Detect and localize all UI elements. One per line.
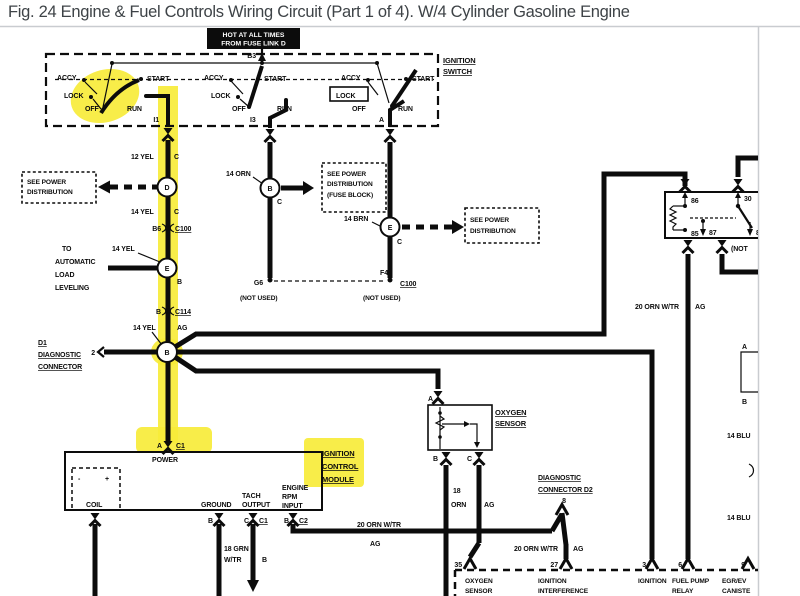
wire-14blu-label2: 14 BLU <box>727 515 751 522</box>
ecm-6-label2: RELAY <box>672 588 694 595</box>
icm-tach-connector: C1 <box>259 518 268 525</box>
sw3-off: OFF <box>352 106 367 113</box>
all-line3: LOAD <box>55 272 74 279</box>
wire-20orn-icm-label: 20 ORN W/TR <box>357 522 401 529</box>
wire-20orn-relay-label: 20 ORN W/TR <box>635 304 679 311</box>
d1-line2: CONNECTOR <box>38 364 82 371</box>
relay-terminal-85: 85 <box>691 231 699 238</box>
d2-line2: CONNECTOR D2 <box>538 487 593 494</box>
ecm-3-label: IGNITION <box>638 578 667 585</box>
pwr2-line2: DISTRIBUTION <box>327 181 373 188</box>
coil: - + COIL <box>72 468 120 596</box>
ignition-switch-label2: SWITCH <box>443 67 472 76</box>
wire-18grn-circuit: B <box>262 557 267 564</box>
ecm-27-label1: IGNITION <box>538 578 567 585</box>
ignition-feed-column: 12 YEL C D SEE POWER DISTRIBUTION 14 YEL… <box>22 128 192 345</box>
relay-terminal-87: 87 <box>709 230 717 237</box>
wire-18orn-label: ORN <box>451 502 466 509</box>
sw3-start: START <box>412 76 435 83</box>
ecm-terminal-6: 6 <box>678 562 682 569</box>
wire-20orn-relay-circuit: AG <box>695 304 706 311</box>
splice-b2-label: B <box>268 186 273 193</box>
all-line4: LEVELING <box>55 285 90 292</box>
pwr1-line1: SEE POWER <box>27 179 66 186</box>
right-edge-column: A B 14 BLU 14 BLU <box>727 344 758 522</box>
pwr3-line2: DISTRIBUTION <box>470 228 516 235</box>
splice-b-branches: B <box>157 174 685 559</box>
ox-name-line2: SENSOR <box>495 419 527 428</box>
sw2-terminal: I3 <box>250 117 256 124</box>
icm-tach-label2: OUTPUT <box>242 502 271 509</box>
wire-18orn-gauge: 18 <box>453 488 461 495</box>
hot-feed-box: HOT AT ALL TIMES FROM FUSE LINK D B3 <box>207 28 300 63</box>
splice-b-label: B <box>165 350 170 357</box>
relay-terminal-30: 30 <box>744 196 752 203</box>
splice-e2-label: E <box>388 225 393 232</box>
d2-line1: DIAGNOSTIC <box>538 475 581 482</box>
sw2-off: OFF <box>232 106 247 113</box>
see-power-distribution-fuse-block-box: SEE POWER DISTRIBUTION (FUSE BLOCK) <box>322 163 386 212</box>
wire-14orn-label: 14 ORN <box>226 171 251 178</box>
switch-section-2: ACCY START LOCK OFF RUN I3 <box>204 66 292 128</box>
highlight-c1-connector <box>136 427 212 453</box>
d1-pin: 2 <box>91 350 95 357</box>
sw3-run: RUN <box>398 106 413 113</box>
highlighter-marks <box>64 60 364 487</box>
oxygen-sensor: A OXYGEN SENSOR B C 18 ORN <box>428 391 527 596</box>
wire-14yel-circuit: C <box>174 209 179 216</box>
wire-12yel-circuit: C <box>174 154 179 161</box>
relay: 86 30 87 8 85 (NOT <box>635 158 770 559</box>
relay-terminal-86: 86 <box>691 198 699 205</box>
splice-d-label: D <box>165 185 170 192</box>
ecm-terminal-27: 27 <box>550 562 558 569</box>
ox-pin-b: B <box>433 456 438 463</box>
wire-20orn-icm-circuit: AG <box>370 541 381 548</box>
icm-ground-label: GROUND <box>201 502 232 509</box>
splice-b2-pin: C <box>277 199 282 206</box>
wire-14yel3-circuit: AG <box>177 325 188 332</box>
wire-14yel2-label: 14 YEL <box>112 246 135 253</box>
sw2-lock: LOCK <box>211 93 230 100</box>
c100-label: C100 <box>175 226 192 233</box>
pwr1-line2: DISTRIBUTION <box>27 189 73 196</box>
sw1-accy: ACCY <box>57 75 77 82</box>
ecm-terminal-35: 35 <box>454 562 462 569</box>
terminal-f4: F4 <box>380 270 388 277</box>
f4-c100-label: C100 <box>400 281 417 288</box>
switch-section-3: ACCY START LOCK OFF RUN A <box>330 63 435 127</box>
ecm-terminal-9: 9 <box>741 562 745 569</box>
wire-12yel-label: 12 YEL <box>131 154 154 161</box>
ecm-6-label1: FUEL PUMP <box>672 578 710 585</box>
wire-14brn-label: 14 BRN <box>344 216 368 223</box>
icm-name-line2: CONTROL <box>322 462 359 471</box>
a-column: 14 BRN E C F4 C100 (NOT USED) <box>274 129 464 302</box>
ecm-35-label2: SENSOR <box>465 588 493 595</box>
splice-e-pin: B <box>177 279 182 286</box>
wire-20orn-d2-circuit: AG <box>573 546 584 553</box>
ecm-9-label1: EGR/EV <box>722 578 747 585</box>
icm-tach-label1: TACH <box>242 493 261 500</box>
hot-feed-line2: FROM FUSE LINK D <box>221 41 286 48</box>
coil-label: COIL <box>86 502 103 509</box>
wire-18orn-circuit: AG <box>484 502 495 509</box>
ecm-27-label2: INTERFERENCE <box>538 588 589 595</box>
icm-rpm-label1: ENGINE <box>282 485 309 492</box>
pwr2-line1: SEE POWER <box>327 171 366 178</box>
hot-feed-line1: HOT AT ALL TIMES <box>223 32 285 39</box>
right-conn-pin-b: B <box>742 399 747 406</box>
wire-18grn-label2: W/TR <box>224 557 242 564</box>
splice-e-label: E <box>165 266 170 273</box>
icm-pin-a: A <box>157 443 162 450</box>
ecm-terminal-3: 3 <box>642 562 646 569</box>
diagnostic-connector-d2: DIAGNOSTIC CONNECTOR D2 8 20 ORN W/TR AG <box>514 475 593 559</box>
sw1-terminal: I1 <box>153 117 159 124</box>
sw3-lock: LOCK <box>336 93 355 100</box>
icm-name-line3: MODULE <box>322 475 354 484</box>
c100-pin: B6 <box>152 226 161 233</box>
splice-e2-pin: C <box>397 239 402 246</box>
f4-not-used: (NOT USED) <box>363 295 400 302</box>
icm-rpm-label2: RPM <box>282 494 298 501</box>
icm-power-label: POWER <box>152 457 178 464</box>
wire-18grn-label1: 18 GRN <box>224 546 249 553</box>
ecm-9-label2: CANISTE <box>722 588 751 595</box>
icm-rpm-connector: C2 <box>299 518 308 525</box>
relay-terminal-8: 8 <box>756 230 760 237</box>
d1-line1: DIAGNOSTIC <box>38 352 81 359</box>
right-conn-pin-a: A <box>742 344 747 351</box>
pwr2-line3: (FUSE BLOCK) <box>327 192 373 199</box>
wiring-diagram-page: Fig. 24 Engine & Fuel Controls Wiring Ci… <box>0 0 800 596</box>
sw1-run: RUN <box>127 106 142 113</box>
terminal-g6: G6 <box>254 280 263 287</box>
ecm-35-label1: OXYGEN <box>465 578 493 585</box>
wire-14blu-label1: 14 BLU <box>727 433 751 440</box>
sw3-accy: ACCY <box>341 75 361 82</box>
sw2-accy: ACCY <box>204 75 224 82</box>
all-line1: TO <box>62 246 72 253</box>
sw1-lock: LOCK <box>64 93 83 100</box>
auto-load-leveling-note: TO AUTOMATIC LOAD LEVELING <box>55 246 95 292</box>
ignition-switch-label1: IGNITION <box>443 56 476 65</box>
icm-connector-c1: C1 <box>176 443 185 450</box>
sw1-off: OFF <box>85 106 100 113</box>
sw1-start: START <box>147 76 170 83</box>
see-power-distribution-box-right: SEE POWER DISTRIBUTION <box>465 208 539 243</box>
ecm-boundary: 35 27 3 6 9 OXYGEN SENSOR IGNITION INTER… <box>454 559 758 596</box>
icm-name-line1: IGNITION <box>322 449 355 458</box>
ox-pin-a: A <box>428 396 433 403</box>
wire-20orn-d2-label: 20 ORN W/TR <box>514 546 558 553</box>
g6-not-used: (NOT USED) <box>240 295 277 302</box>
sw2-start: START <box>264 76 287 83</box>
c114-pin: B <box>156 309 161 316</box>
coil-plus: + <box>105 476 109 483</box>
ox-pin-c: C <box>467 456 472 463</box>
sw3-terminal: A <box>379 117 384 124</box>
coil-minus: - <box>78 476 81 483</box>
d1-id: D1 <box>38 340 47 347</box>
see-power-distribution-box-left: SEE POWER DISTRIBUTION <box>22 172 96 203</box>
icm-rpm-label3: INPUT <box>282 503 303 510</box>
i3-column: 14 ORN B C G6 (NOT USED) <box>226 129 314 302</box>
all-line2: AUTOMATIC <box>55 259 95 266</box>
ox-name-line1: OXYGEN <box>495 408 527 417</box>
diagnostic-connector-d1: D1 DIAGNOSTIC CONNECTOR 2 <box>38 340 157 371</box>
c114-label: C114 <box>175 309 191 316</box>
relay-not-used: (NOT <box>731 246 749 253</box>
wire-14yel3-label: 14 YEL <box>133 325 156 332</box>
icm-ground-pin: B <box>208 518 213 525</box>
pwr3-line1: SEE POWER <box>470 217 509 224</box>
wire-14yel-label: 14 YEL <box>131 209 154 216</box>
wiring-diagram-svg: HOT AT ALL TIMES FROM FUSE LINK D B3 IGN… <box>0 0 800 596</box>
